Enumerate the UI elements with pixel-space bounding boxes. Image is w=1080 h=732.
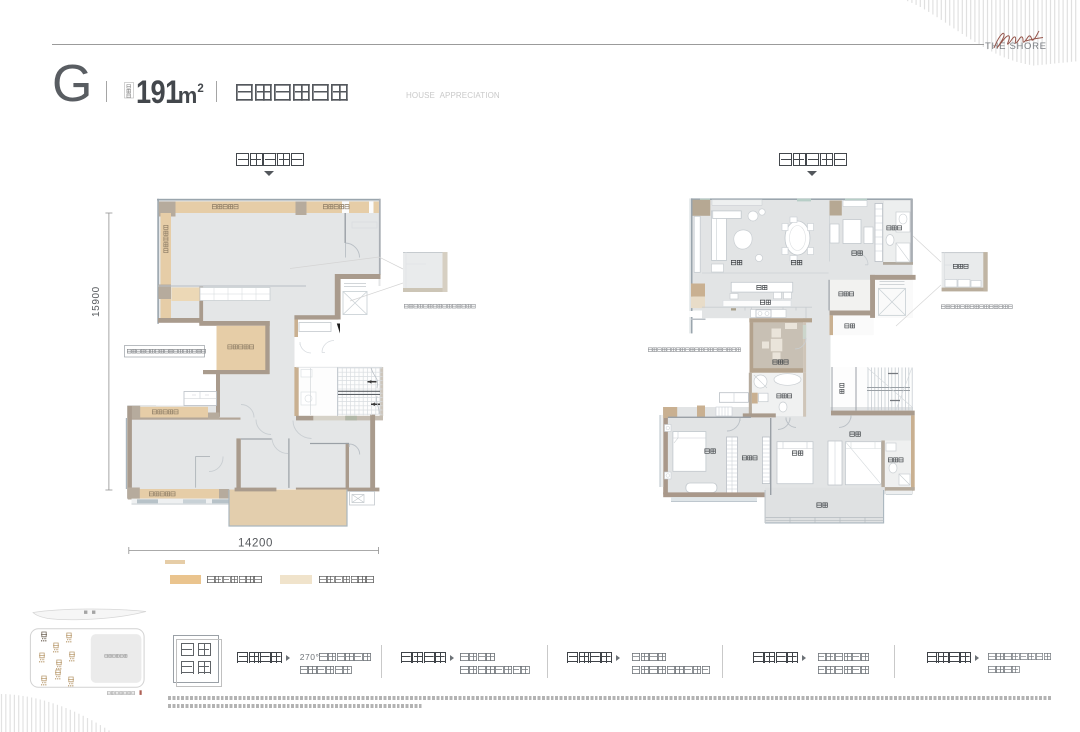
- svg-text:14200: 14200: [238, 538, 273, 550]
- svg-text:15900: 15900: [91, 286, 102, 317]
